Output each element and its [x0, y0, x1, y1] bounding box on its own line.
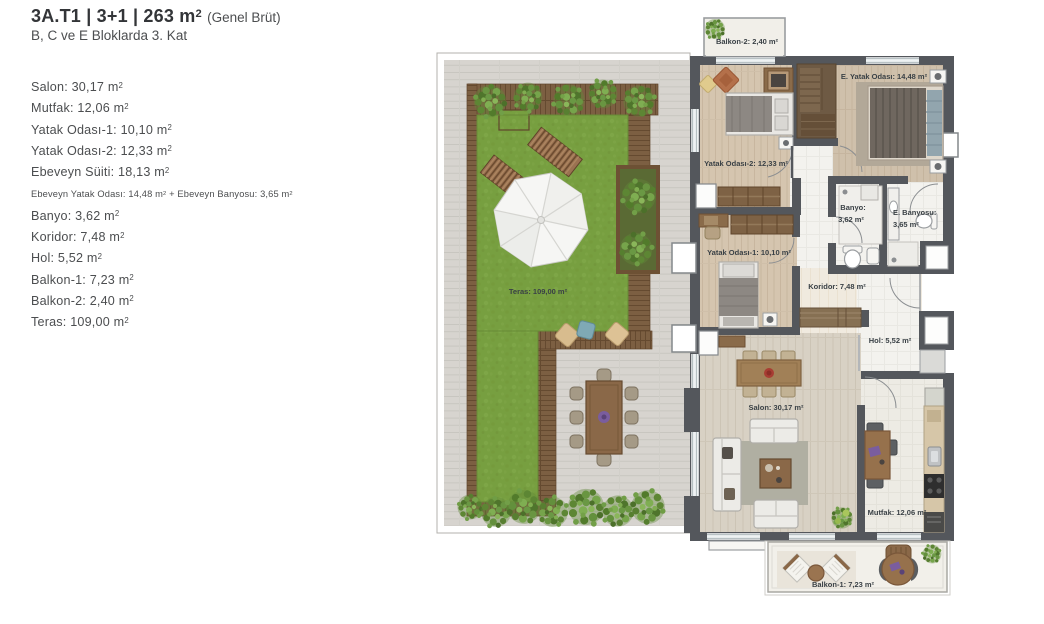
svg-text:Yatak Odası-2: 12,33 m²: Yatak Odası-2: 12,33 m²: [704, 159, 788, 168]
svg-text:Salon: 30,17 m²: Salon: 30,17 m²: [748, 403, 804, 412]
svg-text:Koridor: 7,48 m²: Koridor: 7,48 m²: [808, 282, 866, 291]
svg-text:Mutfak: 12,06 m²: Mutfak: 12,06 m²: [868, 508, 927, 517]
svg-text:Balkon-1: 7,23 m²: Balkon-1: 7,23 m²: [812, 580, 875, 589]
svg-text:Balkon-2: 2,40 m²: Balkon-2: 2,40 m²: [716, 37, 779, 46]
svg-text:3,65 m²: 3,65 m²: [893, 220, 919, 229]
svg-text:Banyo:: Banyo:: [840, 203, 865, 212]
svg-text:E. Banyosu:: E. Banyosu:: [893, 208, 936, 217]
svg-text:Yatak Odası-1: 10,10 m²: Yatak Odası-1: 10,10 m²: [707, 248, 791, 257]
svg-text:Teras: 109,00 m²: Teras: 109,00 m²: [509, 287, 568, 296]
svg-text:Hol: 5,52 m²: Hol: 5,52 m²: [869, 336, 912, 345]
svg-text:E. Yatak Odası: 14,48 m²: E. Yatak Odası: 14,48 m²: [841, 72, 928, 81]
svg-text:3,62 m²: 3,62 m²: [838, 215, 864, 224]
